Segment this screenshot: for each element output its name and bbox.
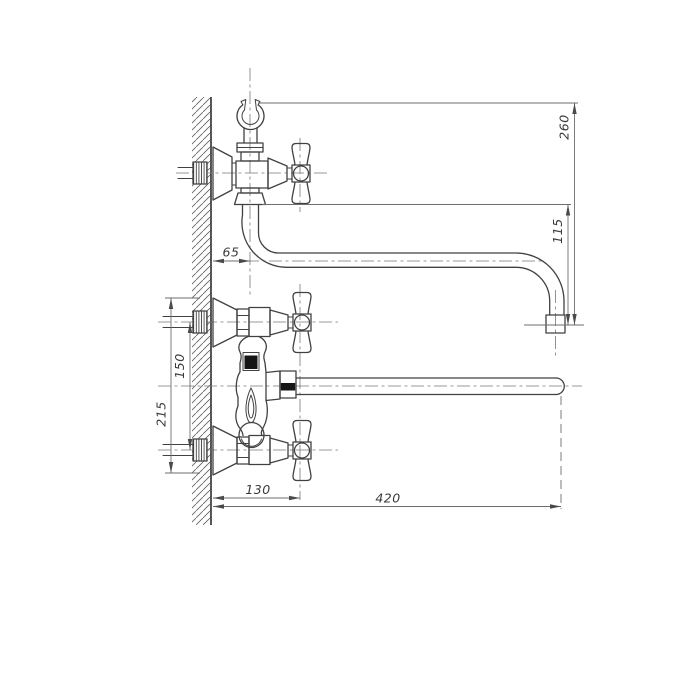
mixer-assembly [163, 293, 564, 481]
drawing-canvas: 65 115 260 150 215 [0, 0, 700, 700]
top-handle-cone [268, 158, 287, 189]
hot-handle-lower-wing [293, 331, 311, 353]
hot-handle-upper-wing [293, 293, 311, 315]
dim-260-arrow-top [572, 103, 576, 114]
dim-115-arrow-bottom [566, 314, 570, 325]
top-handle-lower-wing [292, 182, 310, 204]
cold-hex-nut [237, 437, 249, 464]
hot-handle-hub [293, 314, 311, 331]
cold-handle-neck [288, 445, 293, 456]
top-handle-upper-wing [292, 144, 310, 166]
dim-65-arrow-right [239, 259, 250, 263]
hot-inlet-thread-lines [193, 311, 207, 333]
spout-seal-band [281, 383, 295, 391]
hot-escutcheon [213, 298, 237, 347]
hot-hex-nut [237, 309, 249, 336]
central-body [236, 337, 267, 448]
cold-handle-cone [270, 438, 288, 463]
body-right-outline-lower [261, 400, 267, 436]
dim-215-label: 215 [154, 401, 169, 426]
cartridge-outer [246, 388, 256, 423]
holder-outer-ring [237, 105, 264, 130]
dim-215-arrow-bottom [169, 462, 173, 473]
hot-handle-cone [270, 310, 288, 335]
dim-130-label: 130 [245, 482, 270, 497]
hot-handle-neck [288, 317, 293, 328]
top-handle-screw-cap [294, 166, 309, 181]
top-escutcheon [213, 147, 232, 200]
dimension-annotations: 65 115 260 150 215 [154, 103, 585, 509]
cold-valve [163, 421, 311, 481]
cartridge-inner [248, 395, 253, 418]
dim-130-arrow-left [213, 496, 224, 500]
top-handle-neck [287, 168, 292, 179]
dim-215-arrow-top [169, 298, 173, 309]
dim-115-arrow-top [566, 205, 570, 216]
dim-115-label: 115 [550, 218, 565, 243]
dim-65-label: 65 [223, 245, 240, 260]
holder-inner-ring [242, 110, 259, 125]
cold-handle-lower-wing [293, 459, 311, 481]
cold-escutcheon [213, 426, 237, 475]
faucet-technical-drawing: 65 115 260 150 215 [0, 0, 700, 700]
dim-260-arrow-bottom [572, 314, 576, 325]
dim-150-label: 150 [172, 353, 187, 378]
dim-420-arrow-left [213, 504, 224, 508]
shower-holder-icon [237, 100, 264, 130]
dim-420-arrow-right [550, 504, 561, 508]
dimension-130-420: 130 420 [213, 482, 561, 509]
hot-handle-screw-cap [295, 315, 310, 330]
top-inlet-thread-lines [193, 162, 207, 184]
body-right-outline-upper [259, 337, 266, 373]
dimension-65: 65 [213, 245, 250, 264]
dim-260-label: 260 [557, 114, 572, 139]
dim-130-arrow-right [289, 496, 300, 500]
upper-spout-inner-line [259, 205, 565, 316]
dimension-260-115: 115 260 [258, 103, 584, 325]
diverter-button [245, 356, 258, 370]
top-handle-hub [292, 165, 310, 182]
cold-handle-screw-cap [295, 443, 310, 458]
cold-handle-hub [293, 442, 311, 459]
top-cross-handle [268, 144, 310, 204]
upper-spout-outer-line [242, 205, 550, 316]
top-valve-body [236, 161, 268, 188]
hot-valve [163, 293, 311, 353]
dim-420-label: 420 [375, 491, 400, 506]
cold-handle-upper-wing [293, 421, 311, 443]
top-assembly [178, 100, 565, 334]
cold-inlet-thread-lines [193, 439, 207, 461]
center-lines [158, 68, 582, 509]
